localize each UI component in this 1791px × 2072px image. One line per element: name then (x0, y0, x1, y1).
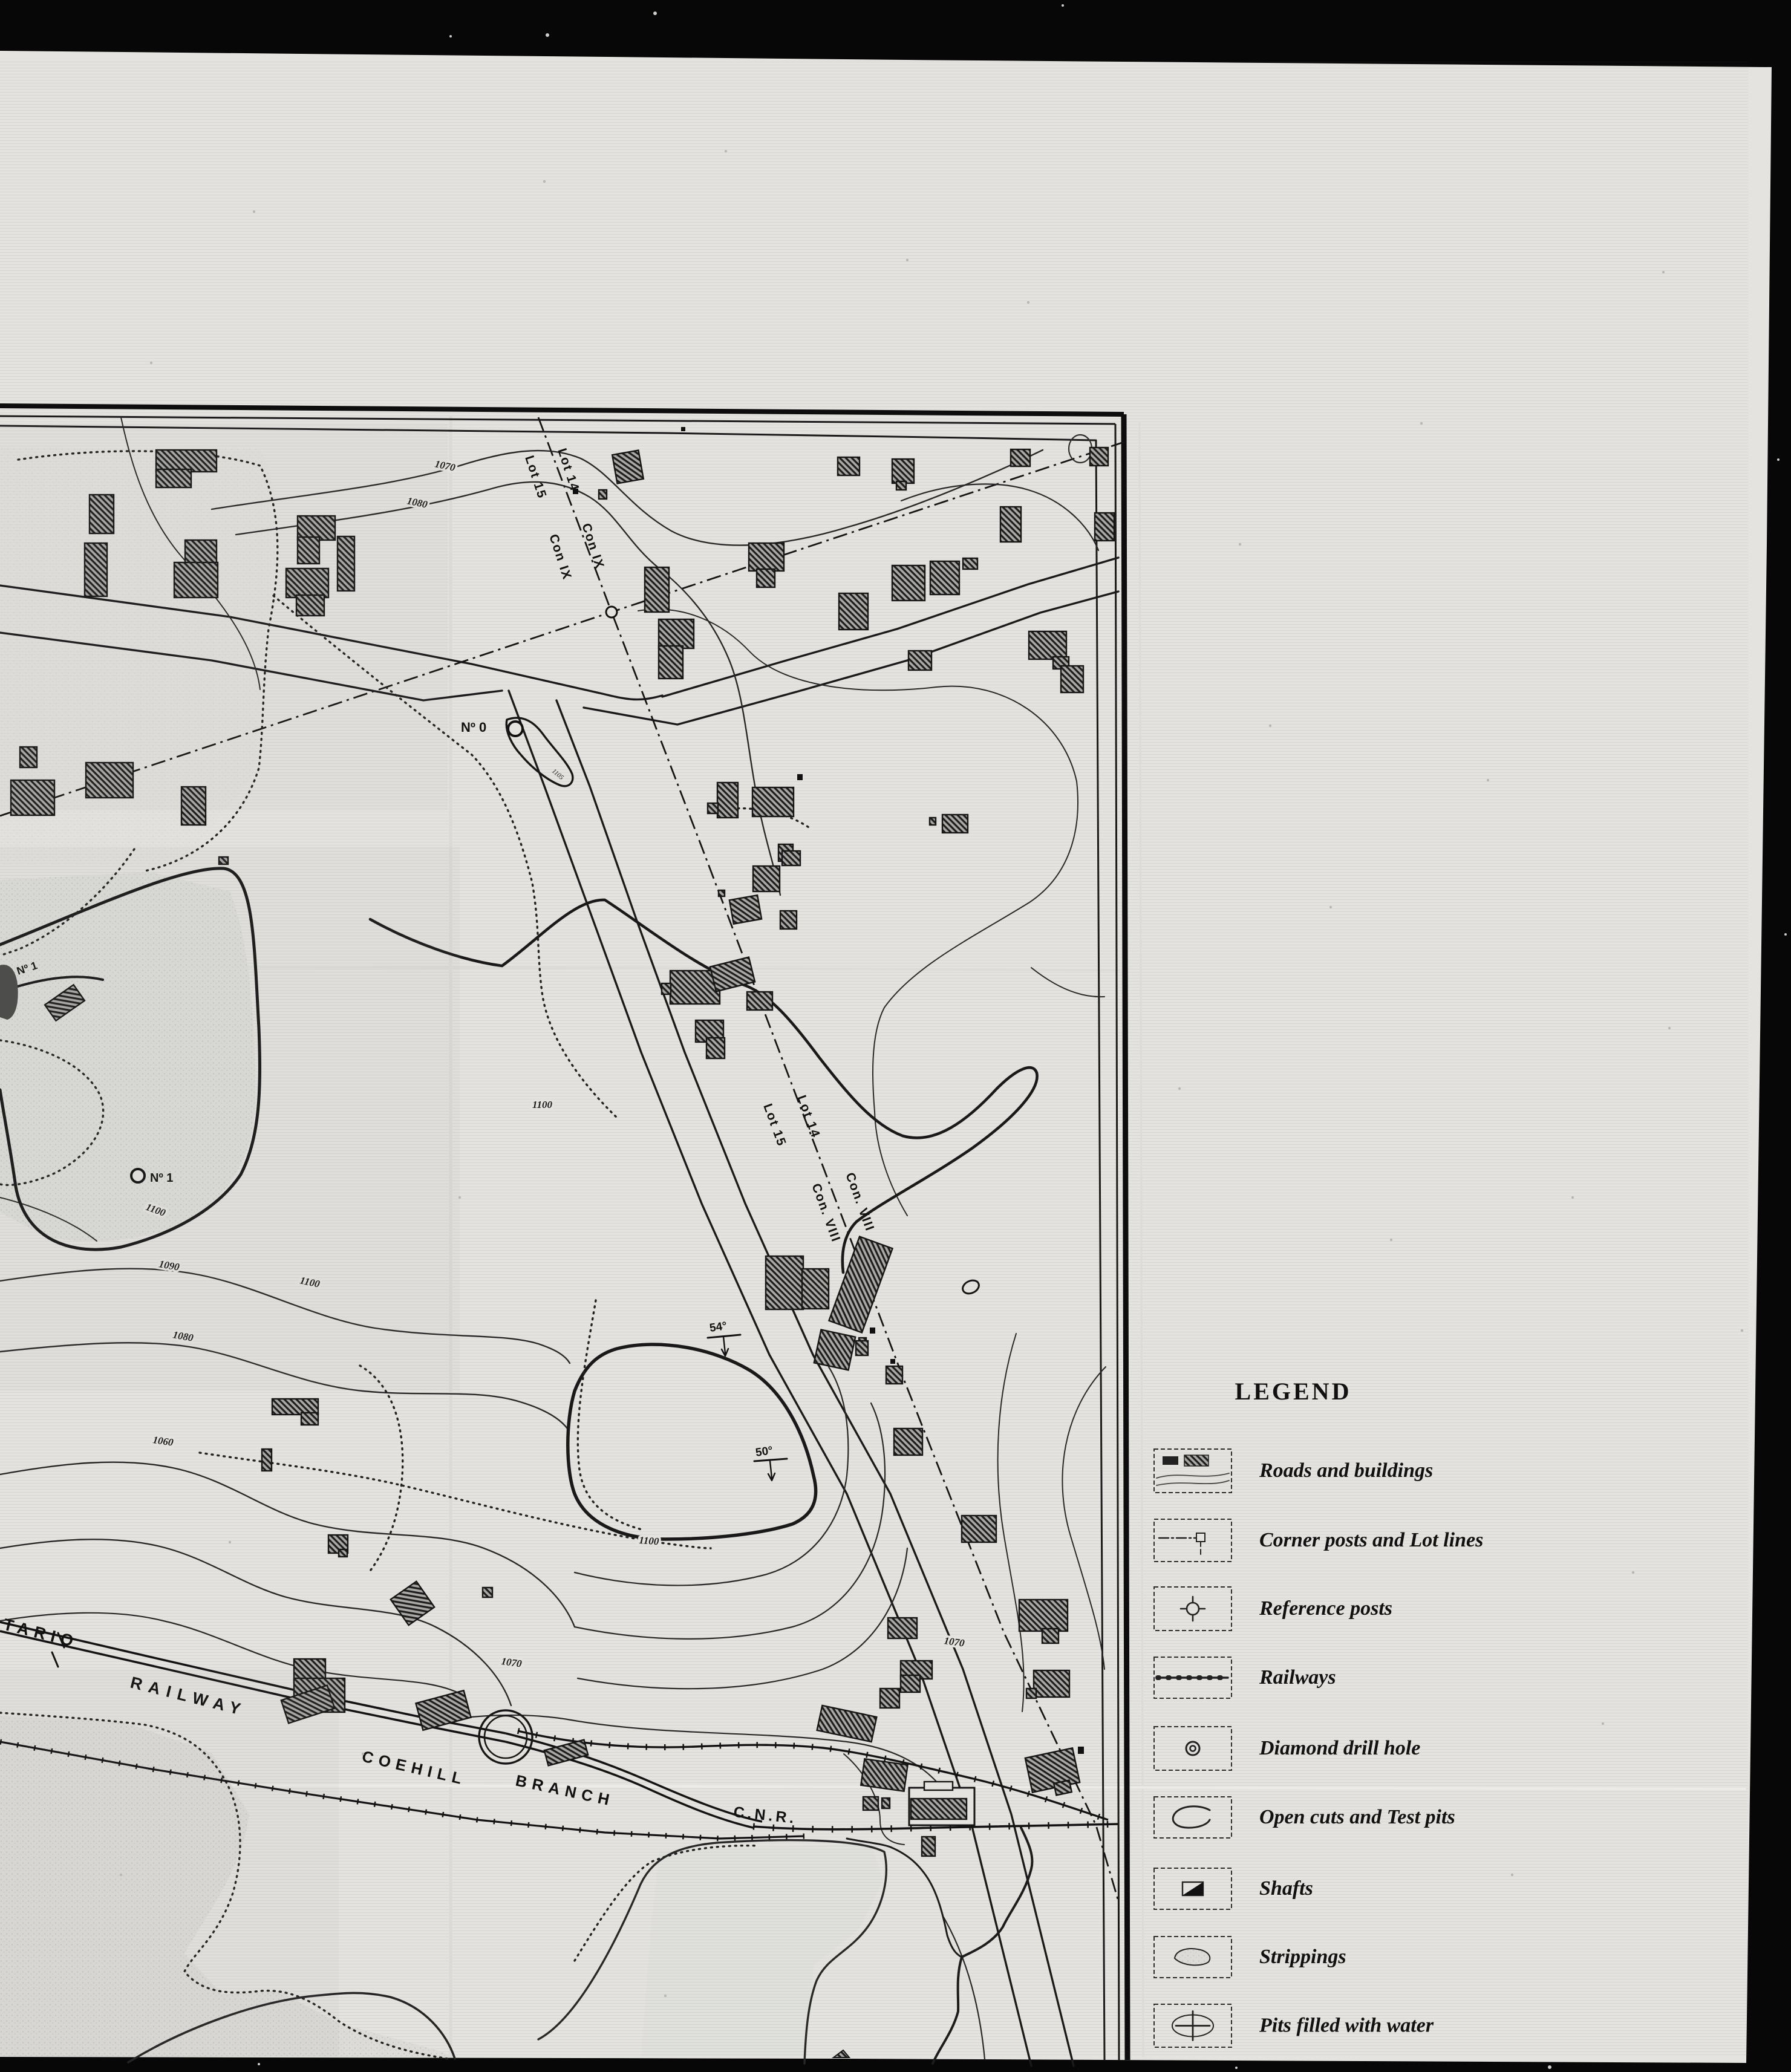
svg-text:Diamond drill hole: Diamond drill hole (1259, 1737, 1420, 1759)
svg-text:LEGEND: LEGEND (1235, 1378, 1352, 1405)
svg-text:Nº 0: Nº 0 (461, 720, 486, 735)
svg-text:Open cuts and Test pits: Open cuts and Test pits (1259, 1806, 1455, 1828)
svg-text:Pits filled with water: Pits filled with water (1259, 2015, 1434, 2037)
svg-text:Railways: Railways (1259, 1666, 1336, 1689)
svg-text:Roads and buildings: Roads and buildings (1259, 1459, 1433, 1482)
svg-text:1100: 1100 (639, 1534, 660, 1547)
svg-text:Corner posts and Lot lines: Corner posts and Lot lines (1259, 1529, 1483, 1551)
svg-text:Reference posts: Reference posts (1259, 1597, 1392, 1620)
svg-text:Shafts: Shafts (1259, 1877, 1313, 1900)
svg-text:50°: 50° (755, 1444, 774, 1459)
svg-text:Strippings: Strippings (1259, 1946, 1346, 1968)
svg-text:54°: 54° (709, 1320, 728, 1335)
svg-text:1100: 1100 (532, 1099, 553, 1110)
